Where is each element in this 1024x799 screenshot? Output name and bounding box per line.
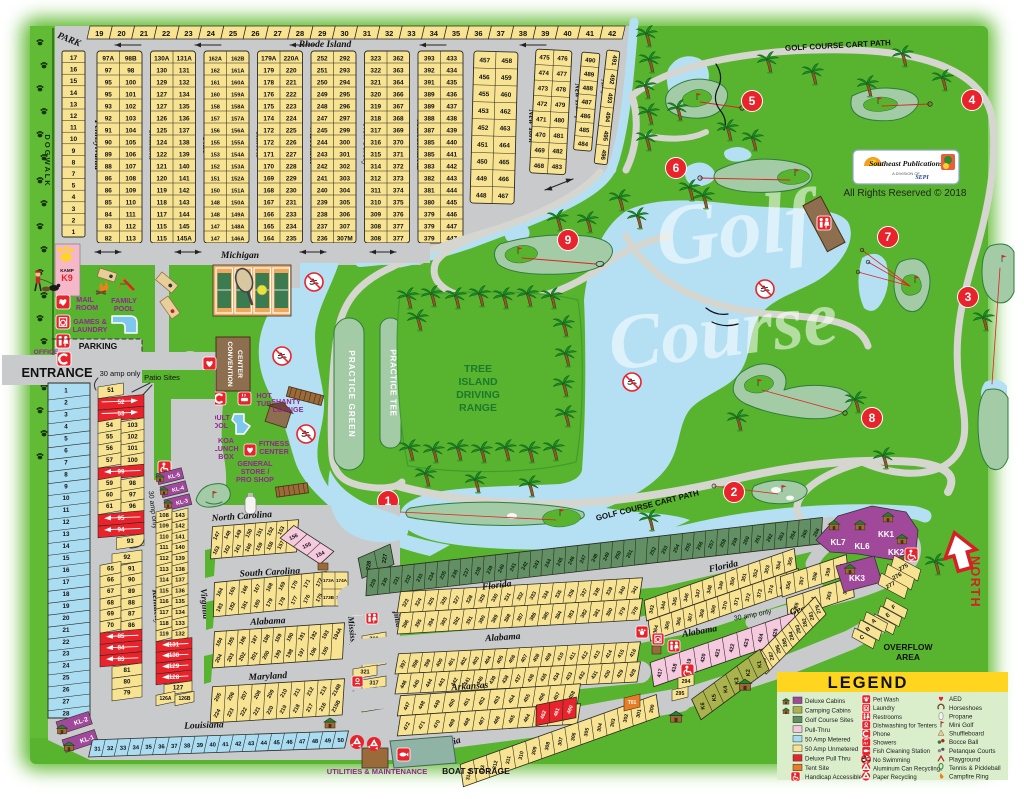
svg-text:70: 70: [107, 622, 114, 629]
svg-text:172: 172: [263, 139, 274, 146]
svg-text:2: 2: [64, 400, 68, 407]
svg-text:137: 137: [179, 127, 190, 134]
svg-text:22: 22: [63, 639, 70, 646]
svg-text:292: 292: [339, 55, 350, 62]
svg-text:91: 91: [105, 127, 113, 134]
svg-text:241: 241: [317, 175, 328, 182]
svg-text:90: 90: [105, 139, 113, 146]
svg-text:236: 236: [317, 235, 328, 242]
svg-text:32: 32: [107, 746, 114, 752]
svg-text:308: 308: [370, 223, 381, 230]
svg-text:Restrooms: Restrooms: [873, 715, 902, 721]
svg-text:111: 111: [126, 211, 136, 218]
svg-text:37: 37: [496, 29, 504, 38]
svg-text:113: 113: [159, 567, 169, 573]
svg-text:488: 488: [582, 85, 593, 93]
svg-text:319: 319: [370, 103, 381, 110]
svg-text:229: 229: [286, 175, 297, 182]
svg-text:Dishwashing for Tenters: Dishwashing for Tenters: [873, 723, 937, 729]
svg-text:11: 11: [70, 125, 77, 132]
svg-text:224: 224: [286, 115, 297, 122]
svg-text:296: 296: [339, 103, 350, 110]
svg-text:124: 124: [156, 139, 167, 146]
svg-text:57: 57: [106, 457, 113, 464]
svg-text:380: 380: [424, 199, 435, 206]
svg-text:Tennis & Pickleball: Tennis & Pickleball: [949, 765, 1001, 772]
svg-text:442: 442: [446, 163, 457, 170]
svg-text:127: 127: [156, 91, 167, 98]
svg-text:95: 95: [118, 515, 125, 522]
svg-text:223: 223: [286, 103, 297, 110]
svg-text:138: 138: [179, 139, 190, 146]
svg-text:311: 311: [371, 187, 382, 194]
svg-text:41: 41: [222, 742, 229, 748]
svg-text:492: 492: [608, 74, 616, 86]
svg-text:157: 157: [211, 116, 220, 122]
svg-text:82: 82: [105, 235, 113, 242]
svg-text:471: 471: [536, 116, 547, 124]
svg-text:484: 484: [577, 140, 588, 148]
svg-text:375: 375: [393, 199, 404, 206]
svg-text:295: 295: [676, 691, 685, 697]
svg-text:151: 151: [211, 176, 220, 182]
svg-text:4: 4: [64, 423, 68, 430]
svg-text:87: 87: [128, 611, 135, 618]
svg-text:RANGE: RANGE: [459, 402, 497, 414]
svg-text:118: 118: [159, 621, 169, 627]
svg-text:AREA: AREA: [896, 652, 920, 662]
svg-text:154A: 154A: [231, 152, 244, 158]
svg-text:481: 481: [553, 133, 564, 141]
svg-text:438: 438: [446, 115, 457, 122]
svg-text:Pet Wash: Pet Wash: [873, 698, 899, 704]
svg-text:389: 389: [424, 91, 435, 98]
svg-text:160A: 160A: [231, 80, 244, 86]
svg-text:KK1: KK1: [878, 530, 895, 539]
svg-text:368: 368: [393, 115, 404, 122]
svg-text:Laundry: Laundry: [873, 706, 895, 712]
svg-text:161A: 161A: [231, 68, 244, 74]
svg-text:433: 433: [446, 55, 457, 62]
svg-text:Deluxe Cabins: Deluxe Cabins: [805, 698, 845, 705]
svg-text:59: 59: [106, 480, 113, 487]
svg-text:Camping Cabins: Camping Cabins: [805, 708, 851, 715]
svg-text:40: 40: [209, 742, 216, 748]
svg-text:103: 103: [127, 422, 138, 429]
svg-text:169: 169: [263, 175, 274, 182]
svg-text:233: 233: [286, 211, 297, 218]
svg-text:435: 435: [446, 79, 457, 86]
svg-text:3: 3: [965, 290, 972, 304]
svg-text:TUB: TUB: [257, 399, 272, 408]
svg-text:465: 465: [499, 159, 510, 166]
svg-text:91: 91: [128, 565, 135, 572]
svg-text:478: 478: [556, 86, 567, 94]
svg-text:474: 474: [538, 70, 549, 78]
svg-text:242: 242: [317, 163, 328, 170]
svg-text:20: 20: [117, 29, 125, 38]
svg-text:250: 250: [317, 79, 328, 86]
svg-text:363: 363: [393, 67, 404, 74]
svg-text:29: 29: [318, 29, 326, 38]
svg-text:379: 379: [424, 223, 435, 230]
svg-text:47: 47: [299, 739, 306, 745]
svg-text:175: 175: [263, 103, 274, 110]
svg-text:496: 496: [599, 149, 607, 161]
svg-text:Paper Recycling: Paper Recycling: [873, 775, 917, 781]
svg-text:LEGEND: LEGEND: [828, 674, 909, 692]
svg-text:165: 165: [263, 223, 274, 230]
svg-text:105: 105: [125, 139, 136, 146]
svg-text:295: 295: [339, 91, 350, 98]
svg-text:121: 121: [156, 163, 167, 170]
svg-text:293: 293: [339, 67, 350, 74]
svg-text:239: 239: [317, 199, 328, 206]
svg-text:ROOM: ROOM: [76, 303, 98, 312]
svg-text:116: 116: [159, 599, 169, 605]
svg-text:93: 93: [127, 538, 134, 545]
svg-text:26: 26: [251, 29, 259, 38]
svg-text:36: 36: [158, 744, 165, 750]
svg-text:445: 445: [446, 199, 457, 206]
svg-text:LAUNDRY: LAUNDRY: [73, 325, 108, 334]
svg-text:43: 43: [248, 741, 255, 747]
svg-text:304: 304: [339, 187, 350, 194]
svg-text:21: 21: [140, 29, 148, 38]
svg-text:94: 94: [118, 526, 125, 533]
svg-text:Phone: Phone: [873, 732, 891, 738]
svg-text:486: 486: [580, 113, 591, 121]
svg-text:6: 6: [673, 161, 680, 175]
svg-text:441: 441: [446, 151, 457, 158]
svg-text:301: 301: [339, 151, 350, 158]
svg-text:65: 65: [107, 565, 114, 572]
svg-text:146A: 146A: [231, 236, 244, 242]
svg-text:456: 456: [479, 74, 490, 81]
svg-text:54: 54: [106, 422, 113, 429]
svg-text:120: 120: [156, 175, 167, 182]
svg-text:167: 167: [263, 199, 274, 206]
svg-text:147: 147: [211, 224, 220, 230]
svg-text:495: 495: [601, 130, 609, 142]
svg-text:136: 136: [175, 588, 185, 594]
svg-text:135: 135: [179, 103, 190, 110]
svg-text:443: 443: [446, 175, 457, 182]
svg-text:247: 247: [317, 115, 328, 122]
svg-text:15: 15: [70, 78, 78, 85]
svg-text:382: 382: [424, 175, 435, 182]
svg-text:467: 467: [498, 193, 509, 200]
svg-text:50 Amp Unmetered: 50 Amp Unmetered: [805, 746, 859, 753]
svg-text:46: 46: [286, 740, 293, 746]
svg-text:490: 490: [585, 57, 596, 65]
svg-text:6: 6: [64, 447, 68, 454]
svg-text:458: 458: [501, 58, 512, 65]
svg-text:3: 3: [72, 206, 76, 213]
svg-text:318: 318: [370, 115, 381, 122]
svg-text:97: 97: [129, 492, 136, 499]
svg-text:323: 323: [370, 55, 381, 62]
svg-text:238: 238: [317, 211, 328, 218]
svg-text:4: 4: [969, 93, 976, 107]
svg-text:173A: 173A: [323, 578, 335, 583]
svg-text:22: 22: [162, 29, 170, 38]
svg-text:459: 459: [501, 75, 512, 82]
svg-text:129: 129: [156, 79, 167, 86]
svg-text:25: 25: [63, 675, 70, 682]
svg-text:300: 300: [339, 139, 350, 146]
svg-text:K4: K4: [723, 685, 730, 693]
svg-text:19: 19: [63, 603, 70, 610]
svg-text:141: 141: [175, 534, 185, 540]
svg-text:307M: 307M: [337, 235, 353, 242]
svg-text:45: 45: [273, 740, 280, 746]
svg-text:PRO SHOP: PRO SHOP: [236, 475, 274, 484]
svg-text:CENTER: CENTER: [236, 350, 243, 378]
svg-text:434: 434: [446, 67, 457, 74]
svg-text:83: 83: [118, 656, 125, 663]
svg-text:472: 472: [537, 101, 548, 109]
svg-text:CONVENTION: CONVENTION: [226, 341, 233, 386]
svg-text:393: 393: [424, 55, 435, 62]
svg-text:485: 485: [579, 127, 590, 135]
svg-text:243: 243: [317, 151, 328, 158]
svg-text:Louisiana: Louisiana: [183, 720, 224, 731]
svg-text:321: 321: [370, 79, 381, 86]
svg-text:128: 128: [169, 674, 180, 681]
svg-text:42: 42: [235, 742, 242, 748]
svg-text:84: 84: [105, 211, 113, 218]
svg-text:31: 31: [94, 746, 101, 752]
svg-text:142: 142: [175, 524, 185, 530]
svg-text:DRIVING: DRIVING: [456, 389, 500, 401]
svg-text:310: 310: [370, 199, 381, 206]
svg-text:66: 66: [107, 577, 114, 584]
svg-text:Southeast Publications: Southeast Publications: [869, 159, 943, 168]
svg-text:28: 28: [296, 29, 304, 38]
svg-text:161: 161: [211, 80, 220, 86]
svg-text:92: 92: [124, 554, 131, 561]
svg-text:489: 489: [584, 71, 595, 79]
svg-text:88: 88: [128, 599, 135, 606]
svg-text:106: 106: [125, 151, 136, 158]
svg-text:55: 55: [106, 434, 113, 441]
svg-text:476: 476: [557, 55, 568, 63]
svg-text:50: 50: [337, 738, 344, 744]
svg-text:KL6: KL6: [854, 542, 870, 551]
svg-text:10: 10: [70, 136, 78, 143]
svg-text:86: 86: [105, 175, 113, 182]
svg-text:159A: 159A: [231, 92, 244, 98]
svg-text:POOL: POOL: [114, 304, 135, 313]
svg-text:3: 3: [64, 412, 68, 419]
svg-text:388: 388: [424, 115, 435, 122]
svg-text:321: 321: [360, 669, 369, 675]
svg-text:2: 2: [72, 217, 76, 224]
svg-text:T01: T01: [628, 700, 637, 706]
svg-text:494: 494: [603, 111, 611, 123]
svg-text:379: 379: [424, 235, 435, 242]
svg-text:Playground: Playground: [949, 756, 981, 763]
svg-text:Handicap Accessible: Handicap Accessible: [805, 774, 863, 781]
svg-text:Fish Cleaning Station: Fish Cleaning Station: [873, 749, 930, 755]
svg-text:470: 470: [535, 132, 546, 140]
svg-text:D O G W A L K: D O G W A L K: [43, 134, 52, 186]
svg-text:228: 228: [286, 163, 297, 170]
svg-text:Patio Sites: Patio Sites: [144, 373, 180, 382]
svg-text:48: 48: [312, 739, 319, 745]
svg-text:156A: 156A: [231, 128, 244, 134]
svg-text:462: 462: [500, 108, 511, 115]
svg-text:34: 34: [430, 29, 439, 38]
svg-text:Petanque Courts: Petanque Courts: [949, 748, 995, 755]
svg-text:K2: K2: [746, 669, 753, 677]
svg-text:39: 39: [197, 743, 204, 749]
svg-text:16: 16: [70, 67, 78, 74]
svg-text:366: 366: [393, 91, 404, 98]
svg-text:5: 5: [749, 94, 756, 108]
svg-text:322: 322: [370, 67, 381, 74]
svg-text:56: 56: [106, 445, 113, 452]
svg-text:157A: 157A: [231, 116, 244, 122]
svg-text:160: 160: [211, 92, 220, 98]
svg-text:90: 90: [128, 577, 135, 584]
svg-text:385: 385: [424, 151, 435, 158]
svg-text:151A: 151A: [231, 188, 244, 194]
svg-text:144: 144: [179, 211, 190, 218]
svg-text:145A: 145A: [177, 235, 193, 242]
svg-text:367: 367: [393, 103, 404, 110]
svg-text:98B: 98B: [125, 55, 137, 62]
svg-text:NORTH: NORTH: [968, 556, 982, 608]
svg-text:112: 112: [159, 556, 168, 562]
svg-text:111: 111: [159, 545, 169, 551]
svg-text:K9: K9: [61, 273, 73, 283]
svg-text:436: 436: [446, 91, 457, 98]
svg-text:110: 110: [159, 534, 168, 540]
svg-text:Campfire Ring: Campfire Ring: [949, 774, 989, 781]
svg-text:139: 139: [179, 151, 190, 158]
svg-text:460: 460: [500, 92, 511, 99]
svg-text:127: 127: [173, 684, 184, 691]
svg-text:231: 231: [286, 199, 297, 206]
svg-text:17: 17: [70, 55, 78, 62]
svg-text:158: 158: [211, 104, 220, 110]
svg-text:158A: 158A: [231, 104, 244, 110]
svg-text:113: 113: [126, 235, 137, 242]
svg-text:294: 294: [682, 679, 691, 685]
svg-text:377: 377: [393, 223, 404, 230]
svg-text:5: 5: [64, 435, 68, 442]
svg-text:306: 306: [339, 211, 350, 218]
svg-text:143: 143: [175, 513, 185, 519]
svg-text:7: 7: [885, 230, 892, 244]
svg-text:466: 466: [498, 176, 509, 183]
svg-text:13: 13: [70, 101, 78, 108]
svg-text:101: 101: [127, 445, 138, 452]
svg-text:97: 97: [105, 67, 113, 74]
svg-text:249: 249: [317, 91, 328, 98]
svg-text:452: 452: [478, 125, 489, 132]
svg-text:4: 4: [72, 194, 76, 201]
svg-text:222: 222: [286, 91, 297, 98]
svg-text:85: 85: [118, 633, 125, 640]
svg-text:468: 468: [534, 163, 545, 171]
svg-text:LOUNGE: LOUNGE: [273, 405, 304, 414]
svg-text:1: 1: [72, 229, 76, 236]
svg-text:25: 25: [229, 29, 237, 38]
svg-text:150A: 150A: [231, 200, 244, 206]
svg-text:2: 2: [731, 485, 738, 499]
svg-text:TREE: TREE: [464, 363, 492, 375]
svg-text:491: 491: [610, 55, 618, 67]
svg-text:297: 297: [339, 115, 350, 122]
svg-text:32: 32: [385, 29, 393, 38]
svg-text:155: 155: [211, 140, 220, 146]
svg-text:38: 38: [184, 743, 191, 749]
svg-text:118: 118: [157, 199, 168, 206]
svg-text:33: 33: [120, 746, 127, 752]
svg-text:31: 31: [363, 29, 371, 38]
svg-text:Tent Site: Tent Site: [805, 765, 830, 772]
svg-text:119: 119: [159, 632, 169, 638]
svg-text:308: 308: [370, 235, 381, 242]
svg-text:37: 37: [171, 744, 178, 750]
svg-text:138: 138: [175, 567, 185, 573]
svg-text:137: 137: [175, 578, 185, 584]
svg-text:86: 86: [128, 622, 135, 629]
svg-text:PRACTICE TEE: PRACTICE TEE: [389, 349, 398, 416]
svg-text:174: 174: [263, 115, 274, 122]
svg-text:85: 85: [105, 199, 113, 206]
svg-text:Alabama: Alabama: [249, 616, 286, 628]
svg-text:92: 92: [105, 115, 113, 122]
svg-text:453: 453: [478, 108, 489, 115]
svg-text:469: 469: [534, 147, 545, 155]
svg-text:38: 38: [519, 29, 527, 38]
svg-text:162B: 162B: [231, 56, 244, 62]
svg-text:Shuffleboard: Shuffleboard: [949, 731, 985, 738]
svg-text:13: 13: [63, 531, 70, 538]
svg-text:131: 131: [169, 641, 180, 648]
svg-text:108: 108: [159, 513, 169, 519]
svg-text:252: 252: [317, 55, 328, 62]
svg-text:30 amp only: 30 amp only: [100, 369, 141, 378]
svg-text:108: 108: [125, 175, 136, 182]
svg-text:387: 387: [424, 127, 435, 134]
svg-text:230: 230: [286, 187, 297, 194]
svg-text:369: 369: [393, 127, 404, 134]
svg-text:50 Amp Metered: 50 Amp Metered: [805, 736, 851, 743]
svg-text:130A: 130A: [154, 55, 170, 62]
svg-text:ISLAND: ISLAND: [458, 376, 498, 388]
svg-text:61: 61: [106, 503, 113, 510]
svg-text:153A: 153A: [231, 164, 244, 170]
svg-text:479: 479: [555, 102, 566, 110]
svg-text:132: 132: [179, 79, 190, 86]
svg-text:14: 14: [63, 543, 70, 550]
svg-text:115: 115: [157, 235, 168, 242]
svg-text:UTILITIES & MAINTENANCE: UTILITIES & MAINTENANCE: [327, 767, 427, 776]
svg-text:35: 35: [452, 29, 460, 38]
svg-text:97A: 97A: [102, 55, 114, 62]
svg-text:49: 49: [324, 738, 331, 744]
svg-text:377: 377: [393, 235, 404, 242]
svg-text:364: 364: [393, 79, 404, 86]
svg-text:24: 24: [207, 29, 216, 38]
svg-text:30: 30: [340, 29, 348, 38]
svg-text:KK3: KK3: [849, 574, 866, 583]
